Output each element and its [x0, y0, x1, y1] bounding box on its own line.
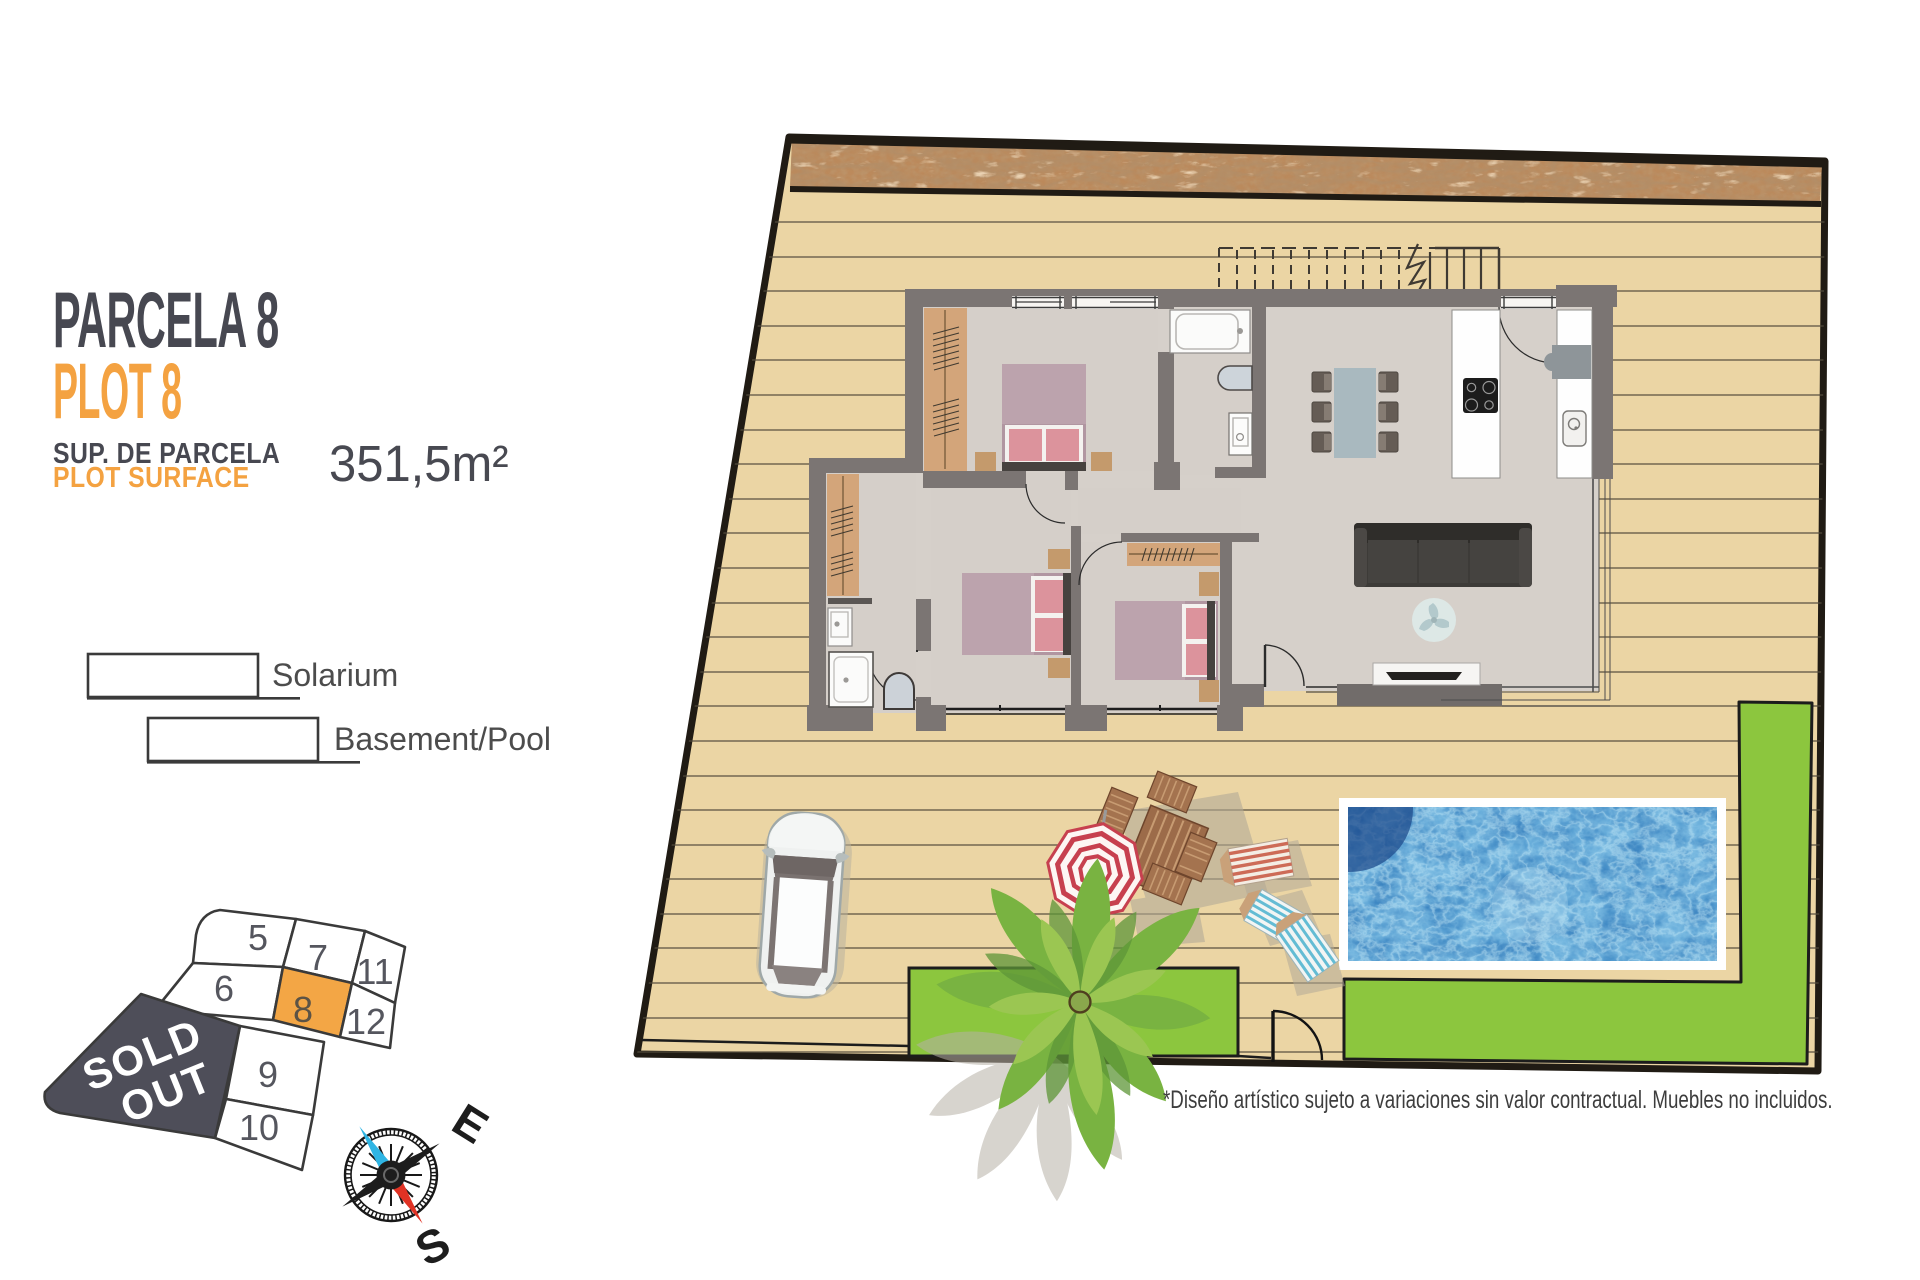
svg-text:*Diseño artístico sujeto a var: *Diseño artístico sujeto a variaciones s… [1163, 1085, 1833, 1113]
svg-text:Solarium: Solarium [272, 657, 398, 693]
svg-text:351,5m²: 351,5m² [329, 435, 509, 492]
svg-text:PLOT 8: PLOT 8 [53, 348, 181, 436]
svg-text:11: 11 [356, 951, 393, 992]
svg-text:9: 9 [258, 1054, 278, 1095]
svg-text:8: 8 [293, 989, 313, 1030]
svg-text:Basement/Pool: Basement/Pool [334, 721, 551, 757]
svg-text:PLOT SURFACE: PLOT SURFACE [53, 461, 250, 493]
svg-text:12: 12 [346, 1001, 386, 1042]
svg-text:5: 5 [248, 917, 268, 958]
svg-text:10: 10 [239, 1107, 279, 1148]
svg-text:6: 6 [214, 968, 234, 1009]
svg-text:7: 7 [308, 937, 328, 978]
